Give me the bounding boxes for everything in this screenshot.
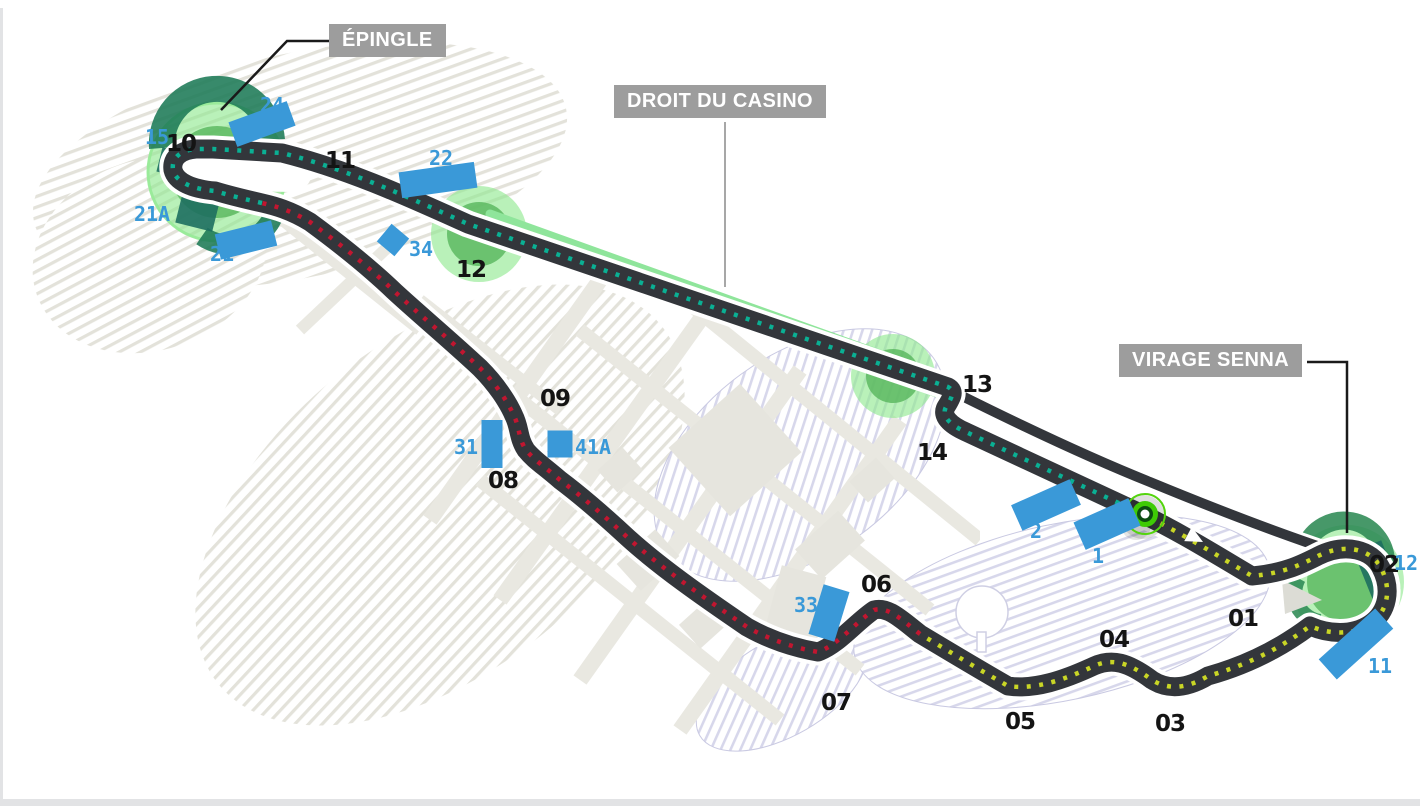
circuit-map-canvas: 01 02 03 04 05 06 07 08 09 10 11 12 13 1… bbox=[0, 0, 1420, 806]
grandstand-number-22: 22 bbox=[429, 146, 453, 170]
start-finish-center bbox=[1141, 510, 1150, 519]
tree-canopy-shape bbox=[956, 586, 1008, 638]
corner-number-08: 08 bbox=[488, 468, 518, 494]
page-edge-bottom bbox=[0, 799, 1420, 806]
grandstand-number-15: 15 bbox=[145, 125, 169, 149]
callout-epingle: ÉPINGLE bbox=[329, 24, 446, 57]
grandstand-number-41a: 41A bbox=[575, 435, 611, 459]
corner-number-06: 06 bbox=[861, 572, 891, 598]
grandstand-number-24: 24 bbox=[260, 93, 284, 117]
corner-number-09: 09 bbox=[540, 386, 570, 412]
grandstand-block-41a bbox=[548, 431, 573, 458]
callout-virage-senna: VIRAGE SENNA bbox=[1119, 344, 1302, 377]
corner-number-11: 11 bbox=[325, 148, 355, 174]
corner-number-07: 07 bbox=[821, 690, 851, 716]
tree-trunk-shape bbox=[977, 632, 986, 652]
grandstand-number-21: 21 bbox=[210, 242, 234, 266]
grandstand-number-1: 1 bbox=[1092, 544, 1104, 568]
corner-number-13: 13 bbox=[962, 372, 992, 398]
leader-line-senna bbox=[1307, 362, 1347, 533]
grandstand-number-11: 11 bbox=[1368, 654, 1392, 678]
page-edge-left bbox=[0, 8, 3, 806]
grandstand-block-31 bbox=[482, 420, 503, 468]
grandstand-number-2: 2 bbox=[1030, 519, 1042, 543]
corner-number-03: 03 bbox=[1155, 711, 1185, 737]
callout-droit-du-casino: DROIT DU CASINO bbox=[614, 85, 826, 118]
corner-number-04: 04 bbox=[1099, 627, 1129, 653]
corner-number-10: 10 bbox=[166, 131, 196, 157]
grandstand-number-12: 12 bbox=[1394, 551, 1418, 575]
corner-number-14: 14 bbox=[917, 440, 947, 466]
circuit-map: 01 02 03 04 05 06 07 08 09 10 11 12 13 1… bbox=[0, 0, 1420, 806]
hairpin-infield-fill bbox=[192, 170, 292, 172]
corner-number-01: 01 bbox=[1228, 606, 1258, 632]
water-hatch-areas bbox=[5, 0, 766, 806]
grandstand-number-21a: 21A bbox=[134, 202, 170, 226]
grandstand-number-31: 31 bbox=[454, 435, 478, 459]
grandstand-number-34: 34 bbox=[409, 237, 433, 261]
corner-number-12: 12 bbox=[456, 257, 486, 283]
grandstand-number-33: 33 bbox=[794, 593, 818, 617]
corner-number-05: 05 bbox=[1005, 709, 1035, 735]
